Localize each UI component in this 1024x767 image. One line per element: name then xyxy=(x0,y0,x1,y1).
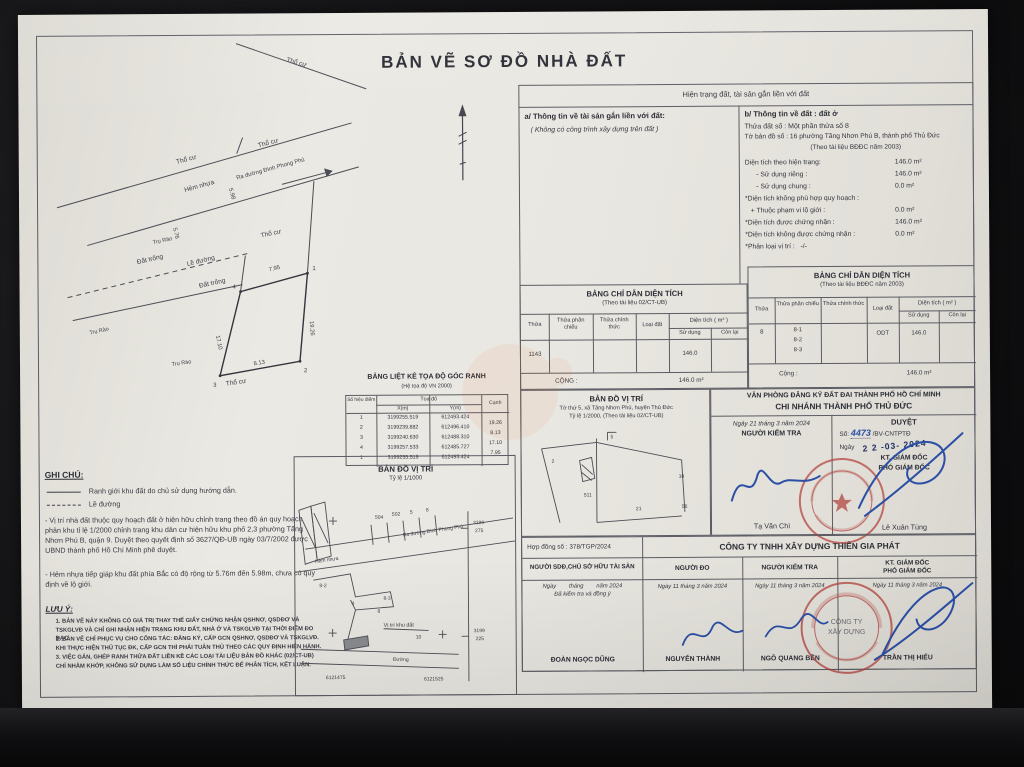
coord-col-x: X(m) xyxy=(376,405,429,411)
col-dien-tich: Diện tích ( m² ) xyxy=(899,300,976,306)
map1000-parcel-504: 504 xyxy=(375,515,384,521)
dim-8-13: 8.13 xyxy=(253,360,265,368)
map1000-road-label: Ra đường Đình Phong Phú xyxy=(402,524,463,539)
cell-phan-chieu-3: 8-3 xyxy=(776,347,820,353)
cell-su-dung: 146.0 xyxy=(899,330,939,336)
cell-phan-chieu-1: 8-1 xyxy=(776,327,820,333)
point-3: 3 xyxy=(213,383,217,389)
registry-office-line2: CHI NHÁNH THÀNH PHỐ THỦ ĐỨC xyxy=(711,401,976,412)
legend-solid-label: Ranh giới khu đất do chủ sử dụng hướng d… xyxy=(89,485,319,496)
coord-point: 1 xyxy=(346,415,376,421)
area-table-bddc: BẢNG CHỈ DẪN DIỆN TÍCH (Theo tài liệu BĐ… xyxy=(747,265,975,388)
label-tho-cu: Thổ cư xyxy=(225,377,247,388)
coord-table-subtitle: (Hệ tọa độ VN 2000) xyxy=(343,383,510,390)
cell-su-dung: 146.0 xyxy=(669,351,711,357)
boundary-tick xyxy=(237,138,243,154)
map1000-grid-275: 275 xyxy=(475,528,484,534)
coord-x: 3199240.630 xyxy=(376,434,429,440)
coord-x: 3199257.533 xyxy=(377,444,430,450)
label-dat-trong: Đất trống xyxy=(198,275,226,290)
land-row-value: 0.0 m² xyxy=(895,206,914,213)
coord-x: 3199255.519 xyxy=(376,414,429,420)
coord-col-point: Số hiệu điểm xyxy=(346,398,376,404)
col4-title-2: PHÓ GIÁM ĐỐC xyxy=(837,567,977,575)
map1000-parcel-502: 502 xyxy=(392,512,401,518)
map2000-n39: 39 xyxy=(679,474,685,480)
land-row-label: *Diện tích được chứng nhận : xyxy=(745,219,835,227)
col-su-dung: Sử dụng xyxy=(899,312,939,318)
map1000-grid-225: 225 xyxy=(476,636,485,642)
total-value: 146.0 m² xyxy=(889,369,949,376)
coord-y: 612485.727 xyxy=(430,444,482,450)
road-edge-north xyxy=(57,123,353,208)
coord-edge: 19.26 xyxy=(481,420,509,426)
map2000-line1: Tờ thứ 5, xã Tăng Nhơn Phú, huyện Thủ Đứ… xyxy=(521,405,711,412)
map1000-duong-label: Đường xyxy=(393,657,409,663)
total-label: CỘNG : xyxy=(555,378,577,385)
registry-office-line1: VĂN PHÒNG ĐĂNG KÝ ĐẤT ĐAI THÀNH PHỐ HỒ C… xyxy=(711,391,976,400)
dim-19-26: 19.26 xyxy=(308,321,315,336)
col-thua: Thửa xyxy=(521,322,549,328)
notes-paragraph-1: - Vị trí nhà đất thuộc quy hoạch đất ở h… xyxy=(45,514,319,555)
label-tho-cu: Thổ cư xyxy=(257,136,280,149)
coord-point: 4 xyxy=(347,445,377,451)
document-sheet: BẢN VẼ SƠ ĐỒ NHÀ ĐẤT Thổ cư xyxy=(18,9,992,715)
col1-title: NGƯỜI SDĐ,CHỦ SỞ HỮU TÀI SẢN xyxy=(524,563,640,571)
col-su-dung: Sử dụng xyxy=(669,330,711,336)
land-row-value: 0.0 m² xyxy=(895,230,914,237)
map1000-sketch: Ra đường Đình Phong Phú Hẻm nhựa 504 502… xyxy=(295,486,518,697)
location-map-1000: BẢN ĐỒ VỊ TRÍ Tỷ lệ 1/1000 xyxy=(294,455,517,696)
map1000-parcel-8: 8 xyxy=(426,507,429,513)
map1000-grid-3199: 3199 xyxy=(473,520,484,526)
map1000-grid-6121525: 6121525 xyxy=(424,676,444,682)
dim-17-10: 17.10 xyxy=(214,335,223,350)
dim-5-98: 5.98 xyxy=(227,188,236,200)
map1000-parcel-8-2: 8-2 xyxy=(319,583,326,589)
legend-dashed-line xyxy=(47,505,81,506)
coord-y: 612493.424 xyxy=(429,414,481,420)
cell-thua: 1143 xyxy=(521,352,549,358)
parcel-drawing: Thổ cư Thổ cư Thổ cư Thổ cư Thổ cư Hẻm n… xyxy=(36,41,368,413)
col2-date: Ngày 11 tháng 3 năm 2024 xyxy=(642,584,742,591)
col-phan-chieu: Thửa phân chiếu xyxy=(550,317,592,332)
map2000-title: BẢN ĐỒ VỊ TRÍ xyxy=(521,394,711,404)
map2000-n21: 21 xyxy=(636,506,642,512)
north-arrow-icon xyxy=(454,102,471,184)
land-row: *Phân loại vị trí : -/- xyxy=(745,242,968,255)
director-signature xyxy=(866,581,979,666)
notes-paragraph-2: - Hẻm nhựa tiếp giáp khu đất phía Bắc có… xyxy=(45,568,319,590)
coord-point: 3 xyxy=(346,435,376,441)
coord-table-title: BẢNG LIỆT KÊ TỌA ĐỘ GÓC RANH xyxy=(343,373,510,381)
coord-y: 612488.310 xyxy=(429,434,481,440)
land-sheet-line: Tờ bản đồ số : 16 phường Tăng Nhơn Phú B… xyxy=(745,132,973,140)
area-table-02ctub: BẢNG CHỈ DẪN DIỆN TÍCH (Theo tài liệu 02… xyxy=(520,284,749,390)
label-tru-rao: Trụ Rào xyxy=(152,236,172,246)
caution-item-3: 3. VIỆC GẮN, GHÉP RANH THỬA ĐẤT LIỀN KỀ … xyxy=(56,652,322,671)
area-table-subtitle: (Theo tài liệu 02/CT-UB) xyxy=(521,300,749,307)
land-row-label: *Diện tích không được chứng nhận : xyxy=(745,231,855,239)
area-table-title: BẢNG CHỈ DẪN DIỆN TÍCH xyxy=(748,270,975,280)
label-tru-rao: Trụ Rào xyxy=(89,326,109,336)
notes-heading: GHI CHÚ: xyxy=(45,470,84,480)
col-thua: Thửa xyxy=(749,306,775,312)
area-table-subtitle: (Theo tài liệu BĐĐC năm 2003) xyxy=(749,281,976,288)
land-row-value: 146.0 m² xyxy=(895,158,922,165)
asset-info-heading: a/ Thông tin về tài sản gắn liền với đất… xyxy=(524,111,734,121)
checker-signature xyxy=(726,458,826,511)
label-dat-trong: Đất trống xyxy=(136,251,164,266)
map2000-n5: 5 xyxy=(610,434,613,440)
map1000-parcel-8-3: 8-3 xyxy=(383,596,390,602)
total-label: Cộng : xyxy=(779,370,798,377)
col-loai-dat: Loại đất xyxy=(637,322,668,328)
map1000-point-4: 4 xyxy=(351,601,354,607)
col1-note: Đã kiểm tra và đồng ý xyxy=(524,591,640,598)
cell-thua: 8 xyxy=(749,329,775,335)
label-hem-nhua: Hẻm nhựa xyxy=(184,179,216,194)
stamp-text-1: CÔNG TY xyxy=(831,617,863,626)
approver-signature xyxy=(848,427,969,524)
label-tho-cu: Thổ cư xyxy=(260,227,282,239)
col-con-lai: Còn lại xyxy=(939,312,976,318)
surveyor-signature xyxy=(677,609,749,657)
point-2: 2 xyxy=(304,368,308,374)
land-row-label: + Thuộc phạm vi lộ giới : xyxy=(745,207,825,214)
label-tru-rao: Trụ Rào xyxy=(171,359,191,368)
coord-y: 612496.410 xyxy=(429,424,481,430)
photo-dark-edge xyxy=(0,708,1024,767)
company-name: CÔNG TY TNHH XÂY DỰNG THIÊN GIA PHÁT xyxy=(642,540,977,552)
map2000-n511: 511 xyxy=(584,492,592,498)
cell-phan-chieu-2: 8-2 xyxy=(776,337,820,343)
approve-title: DUYỆT xyxy=(831,417,976,427)
coord-col-coord: Tọa độ xyxy=(376,396,481,403)
land-row-label: *Diện tích không phù hợp quy hoạch : xyxy=(745,195,859,203)
coord-edge: 17.10 xyxy=(481,440,509,446)
col-dien-tich: Diện tích ( m² ) xyxy=(669,318,749,324)
boundary-extension-left xyxy=(240,256,245,292)
asset-info-note: ( Không có công trình xây dựng trên đất … xyxy=(531,125,731,135)
land-info-heading: b/ Thông tin về đất : đất ở xyxy=(744,108,970,118)
coord-point: 2 xyxy=(346,425,376,431)
col2-title: NGƯỜI ĐO xyxy=(642,565,742,573)
col-chinh-thuc: Thửa chính thức xyxy=(594,317,635,332)
col-chinh-thuc: Thửa chính thức xyxy=(822,301,866,309)
col-phan-chieu: Thửa phân chiếu xyxy=(776,301,820,309)
land-row-label: - Sử dụng chung : xyxy=(745,183,811,190)
photo-of-screen: BẢN VẼ SƠ ĐỒ NHÀ ĐẤT Thổ cư xyxy=(0,0,1024,767)
map1000-parcel-8b: 8 xyxy=(378,609,381,615)
point-1: 1 xyxy=(312,266,316,272)
map2000-sketch: 2 511 5 39 56 21 xyxy=(521,424,712,537)
caution-item-2: 2. BẢN VẼ CHỈ PHỤC VỤ CHO CÔNG TÁC: ĐĂNG… xyxy=(56,634,322,653)
contract-number: Hợp đồng số : 378/TGP/2024 xyxy=(527,543,641,551)
area-table-title: BẢNG CHỈ DẪN DIỆN TÍCH xyxy=(521,289,749,299)
col-con-lai: Còn lại xyxy=(711,330,749,336)
location-map-2000: BẢN ĐỒ VỊ TRÍ Tờ thứ 5, xã Tăng Nhơn Phú… xyxy=(520,389,711,537)
legend-solid-line xyxy=(47,492,81,493)
total-value: 146.0 m² xyxy=(661,377,721,384)
label-le-duong: Lề đường xyxy=(186,252,216,267)
map1000-parcel-5: 5 xyxy=(410,510,413,516)
stamp-text-2: XÂY DỰNG xyxy=(828,627,865,636)
col3-title: NGƯỜI KIỂM TRA xyxy=(742,564,837,572)
map1000-hem-label: Hẻm nhựa xyxy=(315,556,339,565)
checker-title: NGƯỜI KIỂM TRA xyxy=(711,430,831,438)
land-row-label: *Phân loại vị trí : -/- xyxy=(745,243,807,250)
cell-loai-dat: ODT xyxy=(868,331,898,337)
caution-heading: LƯU Ý: xyxy=(45,605,72,614)
col4-title-1: KT. GIÁM ĐỐC xyxy=(837,559,977,567)
coord-col-y: Y(m) xyxy=(429,405,481,411)
label-ra-duong: Ra đường Đình Phong Phú xyxy=(236,157,306,181)
label-tho-cu: Thổ cư xyxy=(175,153,198,166)
col1-date: Ngày tháng năm 2024 xyxy=(524,583,640,590)
checker-date: Ngày 21 tháng 3 năm 2024 xyxy=(711,420,831,428)
map2000-line2: Tỷ lệ 1/2000, (Theo tài liệu 02/CT-UB) xyxy=(521,413,711,420)
map1000-parcel-10: 10 xyxy=(416,635,422,641)
land-row-label: Diện tích theo hiện trạng: xyxy=(745,159,821,166)
coord-x: 3199239.882 xyxy=(376,424,429,430)
label-tho-cu: Thổ cư xyxy=(286,56,309,69)
land-row-label: - Sử dụng riêng : xyxy=(745,171,807,178)
map1000-grid-3199b: 3199 xyxy=(474,628,485,634)
coord-col-edge: Cạnh xyxy=(481,400,509,406)
map1000-scale: Tỷ lệ 1/1000 xyxy=(295,475,517,482)
dim-7-95: 7.95 xyxy=(268,265,280,274)
land-row-value: 146.0 m² xyxy=(895,170,922,177)
map1000-grid-6121475: 6121475 xyxy=(326,675,346,681)
boundary-extension-right xyxy=(307,181,315,273)
coord-edge: 8.13 xyxy=(481,430,509,436)
checker2-signature xyxy=(761,604,831,652)
land-row-value: 146.0 m² xyxy=(895,218,922,225)
map2000-n2: 2 xyxy=(552,459,555,465)
map2000-n56: 56 xyxy=(682,504,688,510)
legend-dashed-label: Lề đường xyxy=(89,498,319,509)
map1000-site-label: Vị trí khu đất xyxy=(384,623,415,629)
land-doc-ref: (Theo tài liệu BĐĐC năm 2003) xyxy=(745,143,967,151)
map1000-title: BẢN ĐỒ VỊ TRÍ xyxy=(295,464,517,474)
land-parcel-line: Thửa đất số : Một phần thửa số 8 xyxy=(745,121,971,131)
land-row-value: 0.0 m² xyxy=(895,182,914,189)
col1-name: ĐOÀN NGỌC DŨNG xyxy=(525,656,641,664)
road-edge-south xyxy=(87,167,359,246)
col-loai-dat: Loại đất xyxy=(868,306,898,312)
dim-5-76: 5.76 xyxy=(171,227,179,239)
